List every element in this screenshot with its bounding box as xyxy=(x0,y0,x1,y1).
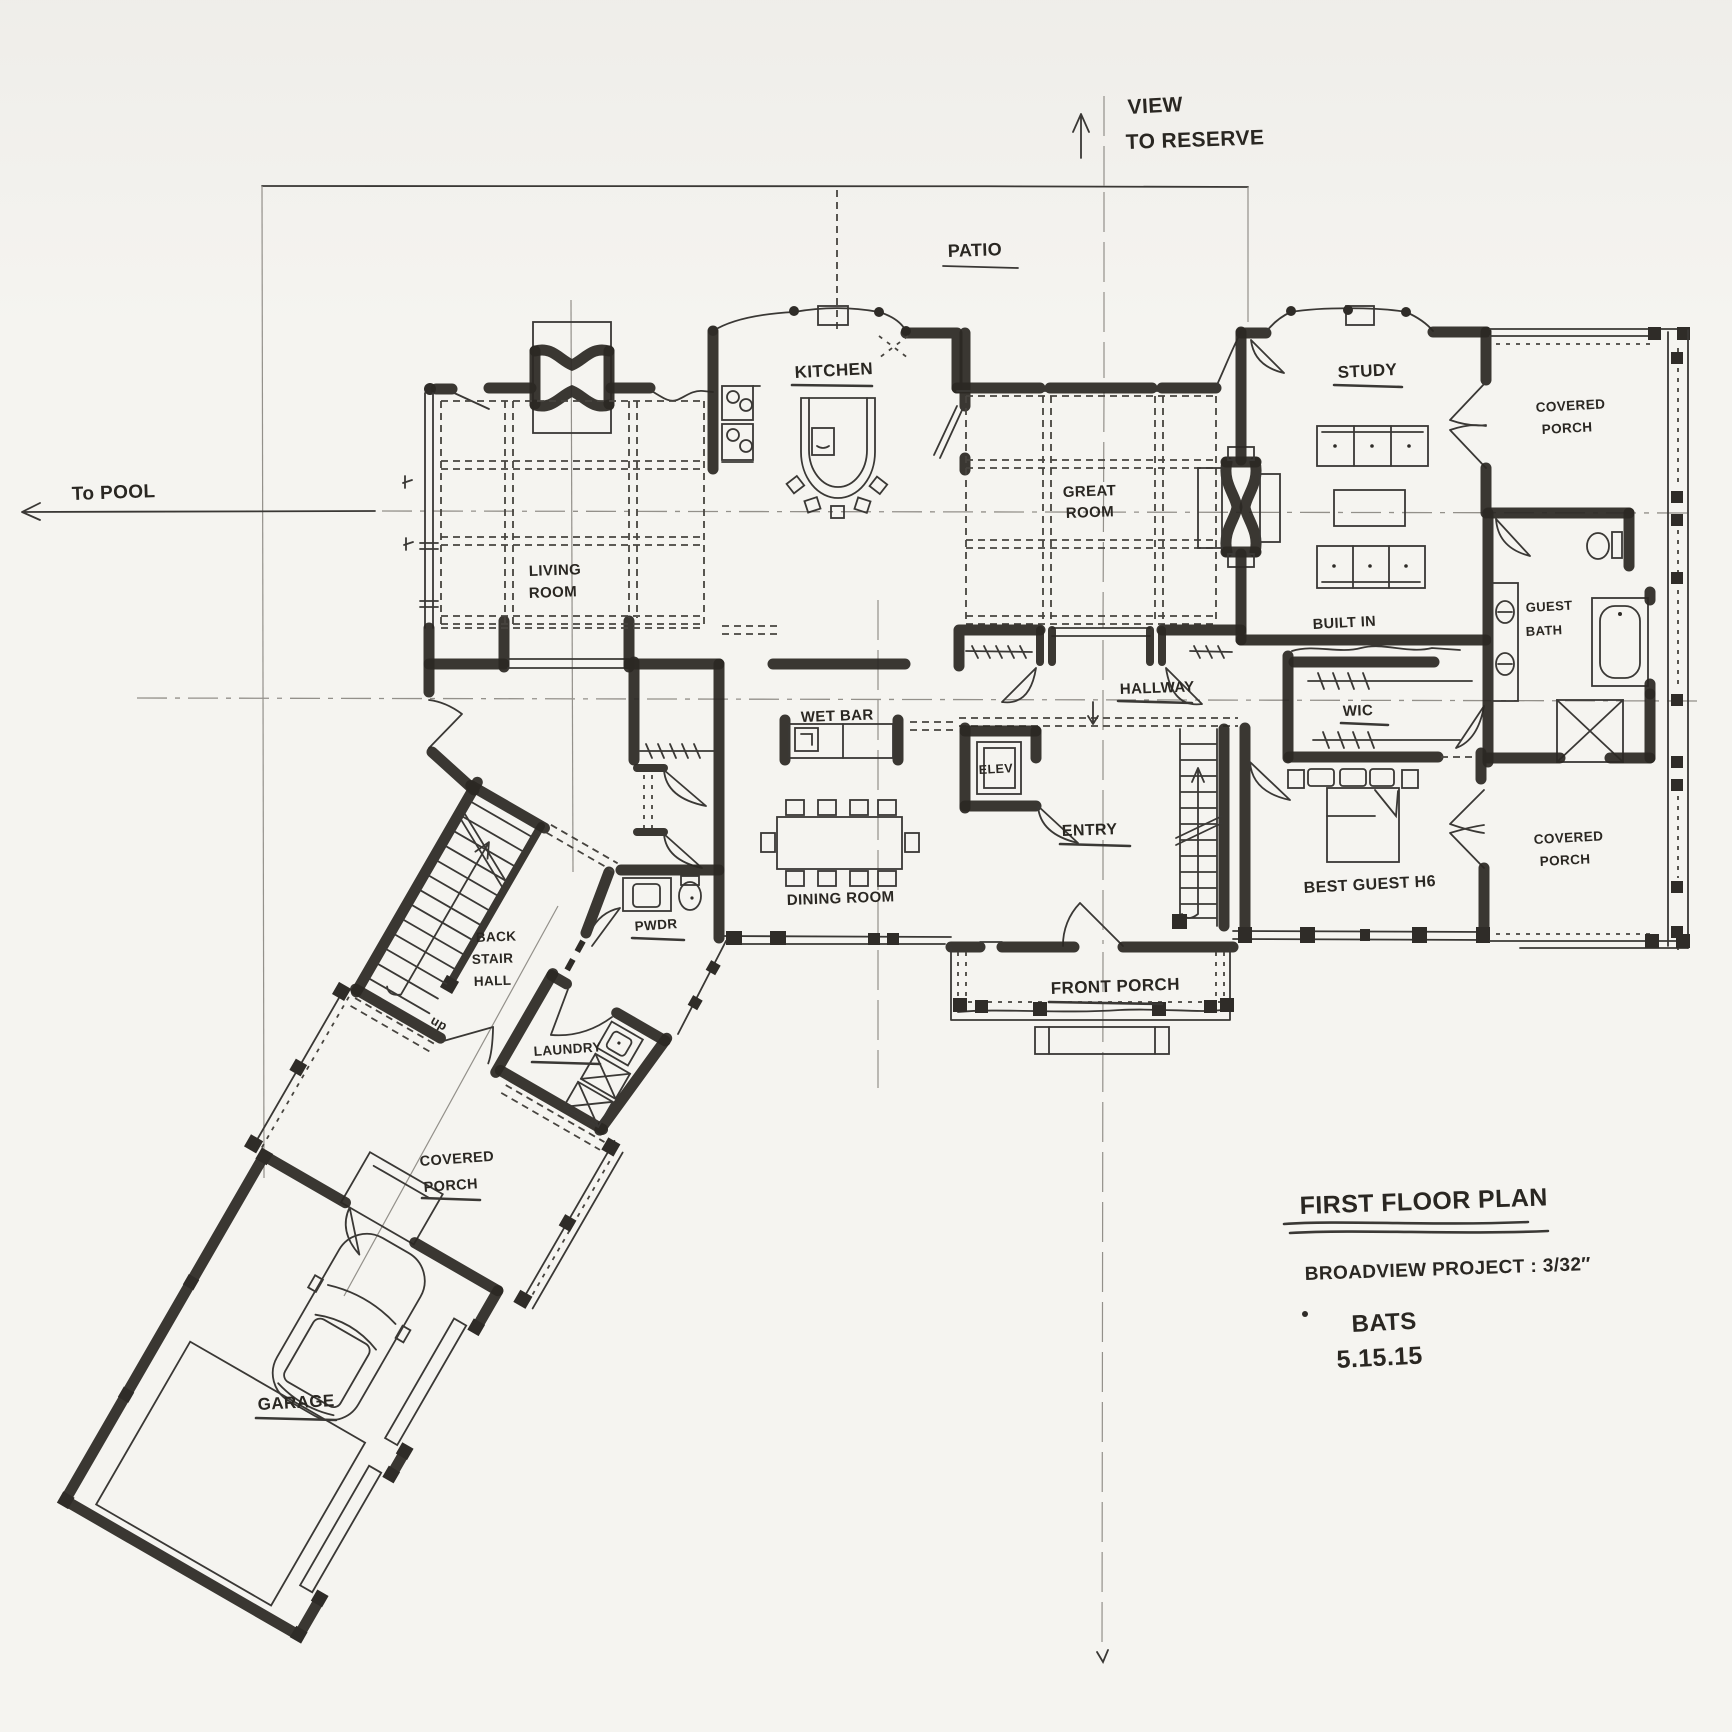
svg-text:HALLWAY: HALLWAY xyxy=(1120,678,1195,698)
svg-text:TO RESERVE: TO RESERVE xyxy=(1125,126,1264,154)
svg-text:BATH: BATH xyxy=(1525,622,1562,639)
svg-text:PORCH: PORCH xyxy=(1539,851,1590,869)
svg-text:5.15.15: 5.15.15 xyxy=(1336,1342,1424,1374)
svg-text:PWDR: PWDR xyxy=(634,916,678,934)
svg-text:To POOL: To POOL xyxy=(71,481,155,505)
svg-text:WET BAR: WET BAR xyxy=(801,706,874,726)
svg-text:GUEST: GUEST xyxy=(1525,598,1573,615)
svg-text:BACK: BACK xyxy=(476,929,517,945)
svg-text:ROOM: ROOM xyxy=(1066,503,1115,522)
svg-text:ROOM: ROOM xyxy=(529,583,578,602)
svg-text:VIEW: VIEW xyxy=(1127,93,1183,119)
svg-text:WIC: WIC xyxy=(1343,702,1374,720)
svg-text:BUILT IN: BUILT IN xyxy=(1312,614,1376,633)
svg-text:BATS: BATS xyxy=(1351,1308,1417,1338)
svg-text:LIVING: LIVING xyxy=(529,561,582,580)
svg-text:GARAGE: GARAGE xyxy=(257,1391,335,1414)
svg-text:GREAT: GREAT xyxy=(1063,482,1117,501)
svg-text:STAIR: STAIR xyxy=(472,951,514,967)
svg-text:ELEV: ELEV xyxy=(978,761,1013,777)
svg-text:STUDY: STUDY xyxy=(1337,360,1398,382)
svg-text:PORCH: PORCH xyxy=(1541,419,1592,437)
svg-text:ENTRY: ENTRY xyxy=(1062,821,1118,840)
svg-text:HALL: HALL xyxy=(474,973,512,989)
svg-text:PATIO: PATIO xyxy=(947,239,1002,261)
